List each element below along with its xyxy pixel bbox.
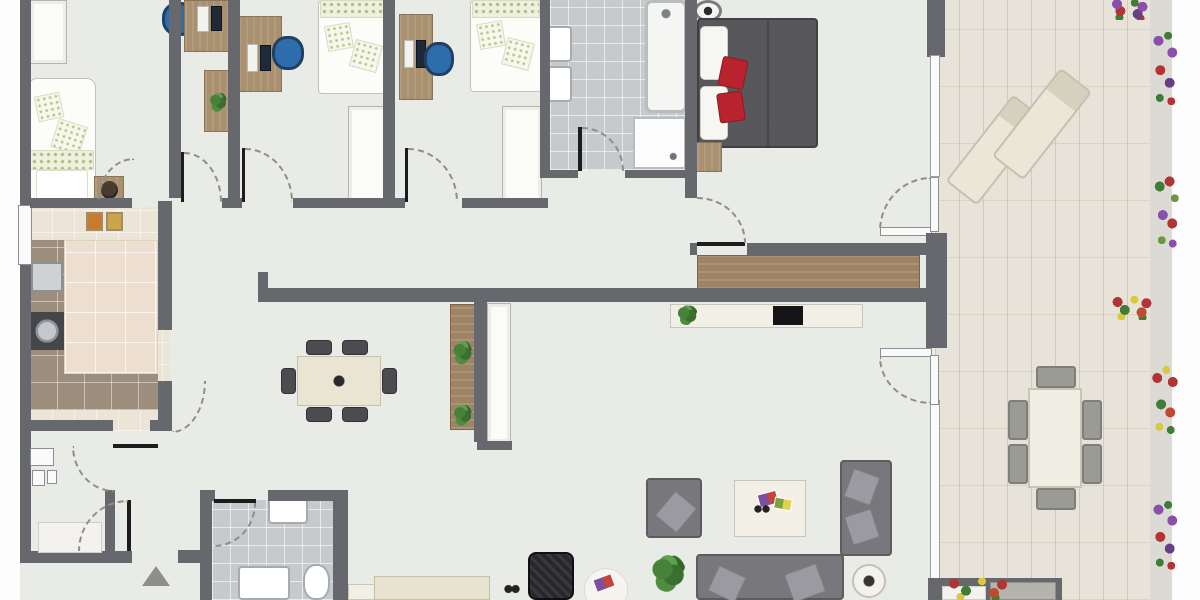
- floor-plan-canvas: [0, 0, 1200, 600]
- bedroom2-pillow-1: [324, 22, 354, 52]
- desk-deco: [503, 578, 521, 600]
- shower: [633, 117, 686, 169]
- outdoor-table: [1028, 388, 1082, 488]
- glass-wall-top: [930, 55, 940, 177]
- pier-office-bed2: [222, 198, 242, 208]
- window-sill-2: [880, 348, 932, 357]
- kitchen-sink: [31, 262, 63, 292]
- pillar-mid-terrace: [926, 233, 947, 348]
- kitchen-wall-bottom-a: [20, 420, 113, 431]
- kitchen-wall-bottom-b: [150, 420, 172, 431]
- dining-chair-left: [281, 368, 296, 394]
- wc-wall-top-a: [200, 490, 215, 501]
- bedroom3-chair-blue: [424, 42, 454, 76]
- master-bottom-wall-b: [747, 243, 930, 255]
- outdoor-chair-top: [1036, 366, 1076, 388]
- living-wall-notch: [258, 272, 268, 288]
- bedroom3-pillow-1: [476, 20, 506, 50]
- black-office-chair: [528, 552, 574, 600]
- meter-box-2: [32, 470, 45, 486]
- dining-table: [297, 356, 381, 406]
- master-nightstand: [696, 142, 722, 172]
- divider-bed1-office: [169, 0, 181, 198]
- bedroom3-wardrobe: [502, 106, 542, 204]
- dining-chair-top-1: [306, 340, 332, 355]
- bedroom2-keyboard: [247, 44, 258, 72]
- wc-toilet: [303, 564, 330, 600]
- flower-bed-4: [1108, 296, 1156, 320]
- bedroom2-chair-blue: [272, 36, 304, 70]
- wall-bed3-span: [462, 198, 548, 208]
- divider-bed2-bed3: [383, 0, 395, 198]
- master-red-cushion-2: [716, 90, 746, 123]
- dining-chair-right: [382, 368, 397, 394]
- living-plant: [650, 554, 686, 592]
- kitchen-stove: [30, 312, 64, 350]
- outdoor-chair-right-2: [1082, 444, 1102, 484]
- flower-bed-2: [1152, 24, 1178, 108]
- master-bottom-wall-a: [690, 243, 697, 255]
- left-outer-wall: [20, 0, 31, 563]
- bathtub: [645, 0, 687, 113]
- meter-box-1: [30, 448, 54, 466]
- terrace-door-living-leaf: [930, 355, 939, 405]
- living-north-wall: [258, 288, 930, 302]
- tv: [773, 306, 803, 325]
- meter-box-3: [47, 470, 57, 484]
- pillar-master-terrace: [927, 0, 945, 57]
- divider-bed3-bath: [540, 0, 550, 177]
- terrace-door-master-leaf: [930, 177, 939, 232]
- flower-bed-5: [1152, 358, 1178, 438]
- bedroom2-monitor: [260, 45, 271, 71]
- outdoor-chair-left-1: [1008, 400, 1028, 440]
- office-monitor: [211, 6, 222, 31]
- tv-sideboard: [670, 304, 863, 328]
- bath-bottom-wall-b: [625, 170, 692, 178]
- divider-office-bed2: [228, 0, 240, 198]
- kitchen-counter-bottom: [30, 374, 158, 410]
- bath-bottom-wall-a: [540, 170, 578, 178]
- kitchen-door-bottom-leaf: [113, 444, 158, 448]
- living-desk: [374, 576, 490, 600]
- washing-machine: [238, 566, 290, 600]
- round-side-table: [852, 564, 886, 598]
- divider-plant-1: [453, 340, 472, 365]
- hall-wardrobe-band: [697, 255, 920, 290]
- outdoor-chair-right-1: [1082, 400, 1102, 440]
- tv-sideboard-plant: [676, 305, 698, 325]
- flower-bed-7: [938, 578, 1018, 600]
- bedroom2-wardrobe: [348, 106, 388, 204]
- bedroom1-blanket-band: [30, 150, 94, 170]
- dining-chair-top-2: [342, 340, 368, 355]
- wall-bed2-span: [293, 198, 405, 208]
- bedroom2-blanket-band: [320, 0, 388, 18]
- bedroom3-blanket-band: [472, 0, 540, 18]
- office-desk: [184, 0, 234, 52]
- wc-wall-left: [200, 490, 212, 600]
- divider-cabinet: [487, 303, 511, 443]
- flower-bed-6: [1152, 494, 1178, 572]
- wc-wall-right: [333, 490, 348, 600]
- kitchen-picture-2: [106, 212, 123, 231]
- divider-wall-cap: [477, 441, 512, 450]
- dining-chair-bottom-1: [306, 407, 332, 422]
- flower-bed-1: [1105, 0, 1153, 20]
- office-keyboard: [197, 6, 209, 32]
- kitchen-window: [18, 205, 32, 265]
- bedroom3-keyboard: [404, 40, 414, 68]
- glass-wall-bottom: [930, 400, 940, 580]
- office-cabinet-plant: [209, 92, 227, 112]
- outdoor-chair-left-2: [1008, 444, 1028, 484]
- divider-wall-stub: [474, 302, 487, 442]
- dining-chair-bottom-2: [342, 407, 368, 422]
- kitchen-wall-right-a: [158, 201, 172, 330]
- kitchen-picture-1: [86, 212, 103, 231]
- flower-bed-3: [1154, 168, 1180, 252]
- outdoor-chair-bottom: [1036, 488, 1076, 510]
- bedroom1-wardrobe: [30, 0, 67, 64]
- kitchen-tile-area: [64, 240, 158, 374]
- coffee-table-bowl: [752, 503, 772, 515]
- divider-bath-master: [685, 0, 697, 198]
- divider-plant-2: [453, 404, 472, 426]
